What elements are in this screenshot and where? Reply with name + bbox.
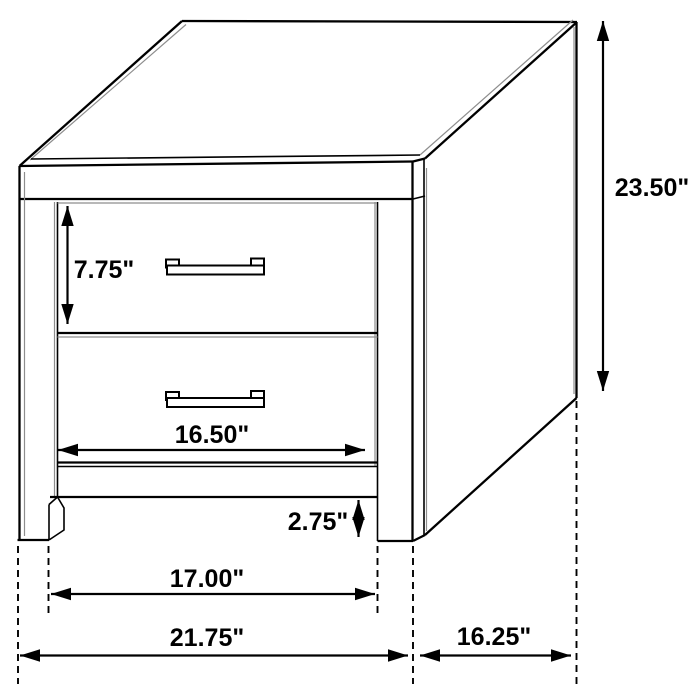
dim-overall-width: 21.75" [20, 624, 408, 656]
front-frame [50, 202, 378, 541]
top-left-slant-roundover [30, 25, 186, 161]
dim-label-depth: 16.25" [457, 623, 531, 651]
dim-drawer-height: 7.75" [68, 206, 135, 324]
dim-label-drawer-width: 16.50" [175, 421, 249, 449]
dim-drawer-width: 16.50" [58, 421, 365, 450]
handle-bar [167, 398, 264, 407]
left-edge [20, 166, 25, 540]
dim-label-overall-width: 21.75" [170, 624, 244, 652]
right-side-panel [413, 22, 577, 541]
top-right-slant-roundover [420, 20, 573, 155]
top-surface [20, 20, 578, 166]
nightstand-dimension-diagram: 23.50" 7.75" 16.50" 2.75" 17.00" 21.75" … [0, 0, 700, 700]
top-left-slant-edge [20, 21, 183, 166]
side-panel-bottom-edge [425, 398, 577, 535]
dim-label-overall-height: 23.50" [615, 174, 689, 202]
drawer-two-handle-icon [166, 391, 264, 407]
dim-label-drawer-height: 7.75" [74, 256, 135, 284]
dim-depth: 16.25" [420, 623, 571, 656]
top-right-slant-edge [425, 22, 577, 159]
dim-overall-height: 23.50" [603, 21, 689, 391]
handle-bar [167, 266, 264, 275]
dim-label-leg-span: 17.00" [170, 565, 244, 593]
dimension-annotations: 23.50" 7.75" 16.50" 2.75" 17.00" 21.75" … [20, 21, 689, 656]
top-front-edge [20, 162, 414, 167]
top-band [20, 196, 426, 199]
top-front-roundover [31, 155, 420, 159]
diagram-canvas: 23.50" 7.75" 16.50" 2.75" 17.00" 21.75" … [0, 0, 700, 700]
dim-leg-span: 17.00" [51, 565, 375, 594]
drawer-one-handle-icon [166, 259, 264, 275]
top-back-edge [182, 21, 577, 22]
right-leg-side-bottom-slant [413, 535, 425, 541]
base-and-legs [18, 497, 426, 541]
dim-label-base-height: 2.75" [288, 508, 349, 536]
dim-base-height: 2.75" [288, 500, 359, 537]
